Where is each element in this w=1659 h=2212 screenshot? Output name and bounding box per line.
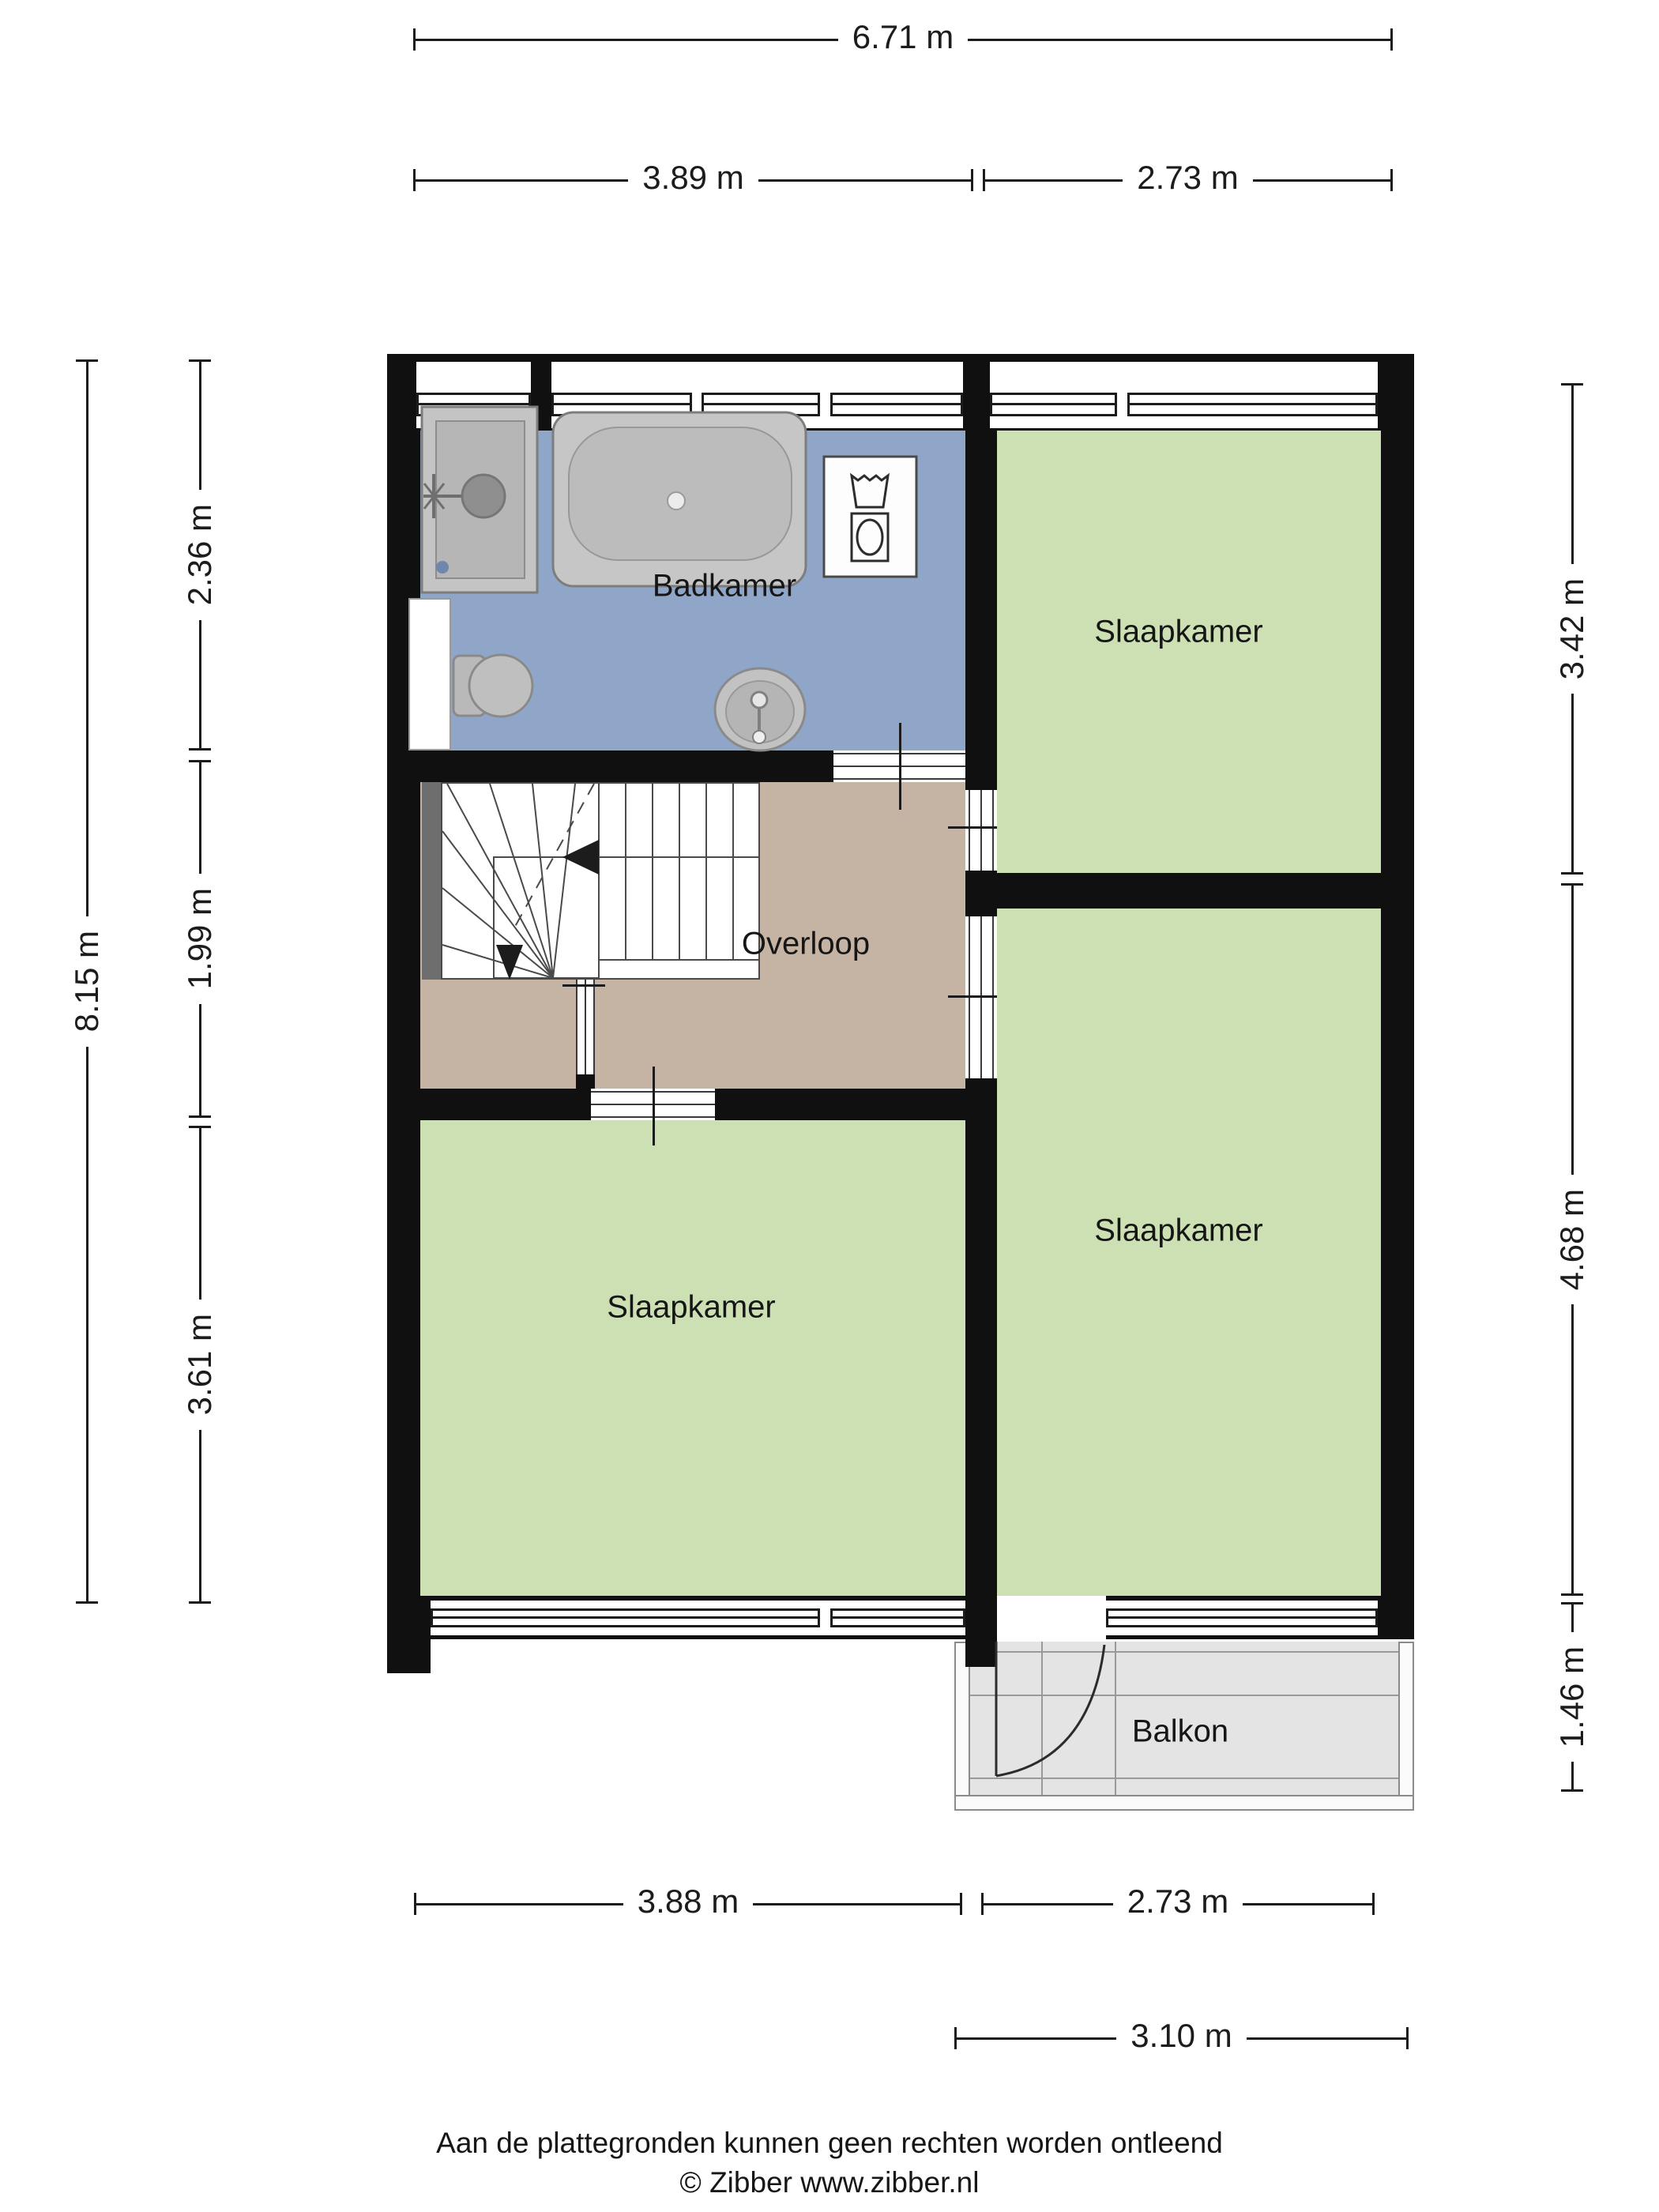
room-slaapkamer-bottom-left	[420, 1120, 965, 1596]
stairwell-void-strip	[422, 782, 441, 980]
door-leaf	[408, 598, 451, 750]
door-opening-stairs	[576, 980, 595, 1074]
window-mullion	[818, 393, 833, 416]
door-frame-tick	[653, 1066, 655, 1145]
room-label-balkon: Balkon	[1132, 1714, 1228, 1750]
room-label-badkamer: Badkamer	[653, 569, 796, 604]
balcony-railing-left	[954, 1642, 970, 1811]
balcony-grid-line	[970, 1651, 1398, 1653]
door-frame-tick	[948, 995, 997, 998]
wall-stub-bottom-mid	[965, 1596, 997, 1667]
dimension-top-left-section: 3.89 m	[413, 163, 973, 197]
balcony-grid-line	[1115, 1642, 1116, 1795]
dimension-top-right-section: 2.73 m	[983, 163, 1393, 197]
wall-left	[387, 354, 420, 1639]
balcony-grid-line	[970, 1777, 1398, 1779]
door-frame-tick	[948, 826, 997, 829]
dimension-right-balkon: 1.46 m	[1523, 1602, 1621, 1792]
dimension-left-badkamer: 2.36 m	[151, 359, 249, 750]
wall-bedrooms-divider	[965, 873, 1414, 908]
room-label-slaapkamer-bottom-right: Slaapkamer	[1094, 1213, 1262, 1249]
dimension-left-overloop: 1.99 m	[151, 760, 249, 1118]
window-glazing	[431, 1608, 965, 1627]
balcony-railing-bottom	[954, 1795, 1414, 1811]
dimension-bottom-left-section: 3.88 m	[414, 1887, 962, 1921]
balcony-door-opening	[997, 1596, 1106, 1639]
door-frame-tick	[562, 984, 605, 987]
dimension-right-slaapkamer-bottom: 4.68 m	[1523, 883, 1621, 1596]
dimension-bottom-right-section: 2.73 m	[981, 1887, 1375, 1921]
room-label-overloop: Overloop	[742, 927, 870, 962]
dimension-left-total: 8.15 m	[38, 359, 136, 1604]
wall-overloop-south-left	[387, 1089, 591, 1120]
wall-divider-bottom	[965, 1078, 997, 1596]
window-mullion	[690, 393, 704, 416]
disclaimer-text: Aan de plattegronden kunnen geen rechten…	[0, 2124, 1659, 2203]
room-slaapkamer-bottom-right	[997, 908, 1381, 1596]
wall-right	[1381, 354, 1414, 1639]
window-mullion	[818, 1608, 833, 1627]
window-glazing	[1106, 1608, 1378, 1627]
window-glazing	[416, 393, 531, 416]
wall-stub-bottom-left	[387, 1596, 431, 1673]
stairs	[441, 782, 760, 980]
balcony-railing-right	[1398, 1642, 1414, 1811]
dimension-left-slaapkamer: 3.61 m	[151, 1126, 249, 1604]
room-slaapkamer-top-right	[997, 431, 1381, 873]
copyright-line: © Zibber www.zibber.nl	[0, 2163, 1659, 2203]
wall-overloop-south-right	[715, 1089, 965, 1120]
window-mullion	[1115, 393, 1130, 416]
dimension-balcony-width: 3.10 m	[954, 2021, 1409, 2056]
wall-badkamer-south	[420, 750, 833, 782]
room-label-slaapkamer-top-right: Slaapkamer	[1094, 615, 1262, 650]
balcony-grid-line	[970, 1695, 1398, 1696]
door-frame-tick	[899, 723, 901, 810]
dimension-top-total: 6.71 m	[413, 22, 1393, 57]
balcony-grid-line	[1041, 1642, 1043, 1795]
window-glazing	[551, 393, 963, 416]
wall-stair-post	[576, 1074, 595, 1089]
window-glazing	[990, 393, 1378, 416]
door-opening-slaapkamer-top-right	[969, 790, 994, 871]
room-label-slaapkamer-bottom-left: Slaapkamer	[607, 1290, 775, 1326]
floorplan-canvas: Badkamer Slaapkamer Overloop Slaapkamer …	[0, 0, 1659, 2212]
dimension-right-slaapkamer-top: 3.42 m	[1523, 383, 1621, 875]
disclaimer-line1: Aan de plattegronden kunnen geen rechten…	[0, 2124, 1659, 2163]
